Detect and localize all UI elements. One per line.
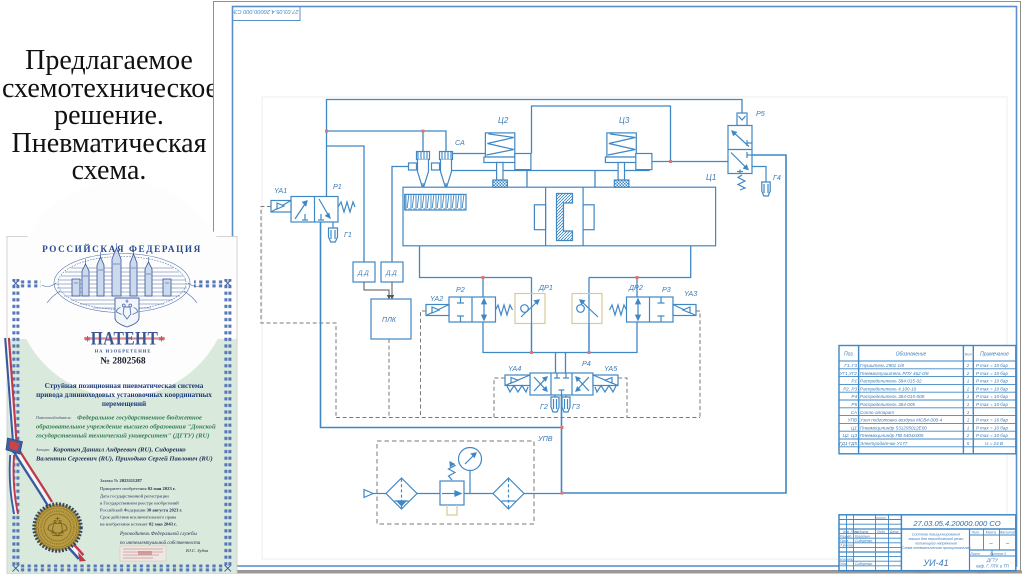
svg-text:НА ИЗОБРЕТЕНИЕ: НА ИЗОБРЕТЕНИЕ [95,349,152,354]
svg-text:Р2, Р3: Р2, Р3 [843,386,857,391]
svg-text:Формат: Формат [975,571,987,574]
svg-text:Лит.: Лит. [971,531,980,535]
svg-text:P4: P4 [582,359,591,368]
svg-text:Г4: Г4 [773,173,781,182]
svg-text:Копировал: Копировал [914,571,931,574]
svg-text:P1: P1 [333,182,342,191]
svg-text:Ц3: Ц3 [619,116,630,125]
svg-text:Ц1: Ц1 [851,425,857,430]
svg-text:Т.контр.: Т.контр. [840,544,854,548]
svg-text:Система позиционирования: Система позиционирования [912,533,960,537]
svg-text:УИ-41: УИ-41 [922,558,948,568]
svg-text:Поз.: Поз. [844,352,854,358]
svg-text:Сидоренко: Сидоренко [855,539,872,543]
svg-text:Авторы:: Авторы: [35,448,50,452]
svg-text:Распределитель 384-015-02: Распределитель 384-015-02 [860,379,922,384]
svg-text:Масштаб: Масштаб [999,531,1017,535]
svg-text:Пневмоглушитель РПУ 462-0/8: Пневмоглушитель РПУ 462-0/8 [860,371,929,376]
svg-text:max = 10 бар: max = 10 бар [980,425,1008,430]
svg-text:Кол: Кол [965,352,972,357]
svg-text:ПАТЕНТ: ПАТЕНТ [91,328,159,349]
svg-text:Распределитель 4.100-10: Распределитель 4.100-10 [860,386,917,391]
svg-text:привода длинноходовых установо: привода длинноходовых установочных коорд… [36,391,212,399]
svg-text:YA4: YA4 [508,364,521,373]
svg-text:Ц1: Ц1 [706,173,716,182]
svg-text:Распределитель 384-015-00Е: Распределитель 384-015-00Е [860,394,926,399]
svg-text:Патентообладатель:: Патентообладатель: [35,416,72,420]
svg-text:на изобретение истекает 02 мая: на изобретение истекает 02 мая 2043 г. [100,522,177,527]
svg-text:max = 10 бар: max = 10 бар [980,371,1008,376]
svg-text:P3: P3 [662,285,671,294]
svg-text:Дата государственной регистрац: Дата государственной регистрации [100,494,169,499]
svg-text:Узел подготовки воздуха МСВ4-0: Узел подготовки воздуха МСВ4-000-4 [860,418,943,423]
svg-text:max = 16 бар: max = 16 бар [980,418,1008,423]
svg-text:Приоритет изобретения 02 мая 2: Приоритет изобретения 02 мая 2023 г. [100,486,176,491]
svg-text:ДГТУ: ДГТУ [986,558,999,563]
svg-text:max = 10 бар: max = 10 бар [980,433,1008,438]
svg-text:Р4: Р4 [851,394,857,399]
svg-text:Г1..Г3: Г1..Г3 [844,363,857,368]
svg-text:Руководитель Федеральной служб: Руководитель Федеральной службы [119,531,198,537]
svg-text:питающего напряжения: питающего напряжения [915,542,957,546]
svg-text:✱: ✱ [158,335,165,344]
svg-text:Р1: Р1 [851,379,857,384]
svg-text:ГД1-ГД5: ГД1-ГД5 [839,441,857,446]
svg-text:Валентин Сергеевич (RU), Прихо: Валентин Сергеевич (RU), Приходько Серге… [35,456,213,463]
svg-text:УПВ: УПВ [537,434,553,443]
svg-text:СА: СА [455,138,465,147]
svg-text:Срок действия исключительного: Срок действия исключительного права [100,515,176,520]
svg-text:машин для периодической резки: машин для периодической резки [909,537,964,541]
svg-text:ДР1: ДР1 [538,283,553,292]
svg-text:1: 1 [967,394,970,399]
svg-text:Заявка № 2023111287: Заявка № 2023111287 [100,478,143,483]
svg-text:РОССИЙСКАЯ ФЕДЕРАЦИЯ: РОССИЙСКАЯ ФЕДЕРАЦИЯ [42,244,202,254]
svg-text:Схема пневматическая принципиа: Схема пневматическая принципиальная [902,546,971,550]
svg-text:Федеральное государственное бю: Федеральное государственное бюджетное [77,415,202,422]
svg-text:Масса: Масса [986,531,997,535]
svg-text:Электродатчик У177: Электродатчик У177 [860,441,908,446]
svg-text:по интеллектуальной собственно: по интеллектуальной собственности [120,540,201,546]
svg-text:перемещений: перемещений [102,400,146,408]
svg-text:27.03.05.4.20000.000 СЭ: 27.03.05.4.20000.000 СЭ [233,8,299,14]
svg-text:Ю.С. Зубов: Ю.С. Зубов [185,548,208,553]
svg-text:№ докум.: № докум. [855,530,869,534]
svg-text:ДР2: ДР2 [628,283,643,292]
svg-text:Лист: Лист [969,552,979,556]
svg-text:max = 10 бар: max = 10 бар [980,402,1008,407]
svg-text:2: 2 [966,433,970,438]
svg-text:2: 2 [966,363,970,368]
svg-text:YA3: YA3 [684,289,697,298]
svg-text:Листов 1: Листов 1 [989,552,1006,556]
svg-text:27.03.05.4.20000.000 СО: 27.03.05.4.20000.000 СО [912,519,1000,528]
svg-text:Пров.: Пров. [840,539,849,543]
svg-text:Г2: Г2 [540,402,548,411]
svg-text:Российской Федерации 30 август: Российской Федерации 30 августа 2023 г. [100,508,182,513]
svg-text:1: 1 [967,418,970,423]
svg-text:Струйная позиционная пневматич: Струйная позиционная пневматическая сист… [45,382,204,390]
svg-text:Н.контр.: Н.контр. [840,558,854,562]
svg-text:Утв.: Утв. [840,562,848,566]
svg-text:Ц2, Ц3: Ц2, Ц3 [843,433,858,438]
svg-text:Ц2: Ц2 [498,116,509,125]
svg-text:max = 10 бар: max = 10 бар [980,379,1008,384]
svg-text:Сидоренко: Сидоренко [855,562,872,566]
svg-text:max = 10 бар: max = 10 бар [980,386,1008,391]
svg-text:Сопло-аппарат: Сопло-аппарат [860,410,894,415]
svg-text:каф. Г. ПТК и ТП: каф. Г. ПТК и ТП [976,564,1010,569]
svg-text:Г3: Г3 [572,402,580,411]
svg-text:P2: P2 [456,285,465,294]
svg-text:2: 2 [966,371,970,376]
svg-text:YA5: YA5 [604,364,618,373]
svg-text:2: 2 [966,386,970,391]
svg-text:1: 1 [967,425,970,430]
svg-text:Разраб.: Разраб. [840,535,852,539]
svg-text:Д.Д: Д.Д [385,270,397,277]
svg-text:Д.Д: Д.Д [357,270,369,277]
svg-text:Дата: Дата [889,530,899,534]
svg-text:Подп.: Подп. [877,530,886,534]
svg-text:Пневмоцилиндр 531295012Е00: Пневмоцилиндр 531295012Е00 [860,425,927,430]
svg-text:max = 10 бар: max = 10 бар [980,363,1008,368]
svg-text:5: 5 [967,441,970,446]
svg-text:СА: СА [851,410,857,415]
svg-text:Коротыч: Коротыч [855,535,870,539]
svg-text:1: 1 [967,410,970,415]
svg-text:–: – [988,541,993,547]
svg-text:1: 1 [967,402,970,407]
svg-text:Глушитель 2901 1/8: Глушитель 2901 1/8 [860,363,904,368]
svg-text:Обозначение: Обозначение [896,352,927,358]
svg-text:–: – [1005,541,1010,547]
svg-text:P5: P5 [756,109,766,118]
svg-text:YA2: YA2 [430,294,443,303]
svg-text:Г1: Г1 [344,230,352,239]
svg-text:Пневмоцилиндр ПВ 5404х005: Пневмоцилиндр ПВ 5404х005 [860,433,924,438]
svg-text:Коротыч Даниил Андреевич (RU),: Коротыч Даниил Андреевич (RU), Сидоренко [52,447,186,454]
svg-text:Примечание: Примечание [980,352,1009,358]
svg-text:государственный технический ун: государственный технический университет"… [36,433,209,440]
svg-text:YA1: YA1 [274,186,287,195]
svg-text:Р5: Р5 [851,402,857,407]
svg-text:УГ1,УГ2: УГ1,УГ2 [840,371,858,376]
svg-text:в Государственном реестре изоб: в Государственном реестре изобретений [100,501,179,506]
svg-text:Распределитель 384-005: Распределитель 384-005 [860,402,915,407]
svg-text:U = 24 В: U = 24 В [985,441,1003,446]
svg-text:1: 1 [967,379,970,384]
svg-text:№ 2802568: № 2802568 [100,357,145,367]
svg-text:max = 10 бар: max = 10 бар [980,394,1008,399]
svg-text:ПЛК: ПЛК [382,317,397,324]
svg-text:УПВ: УПВ [848,418,857,423]
svg-text:образовательное учреждение выс: образовательное учреждение высшего образ… [36,424,216,431]
